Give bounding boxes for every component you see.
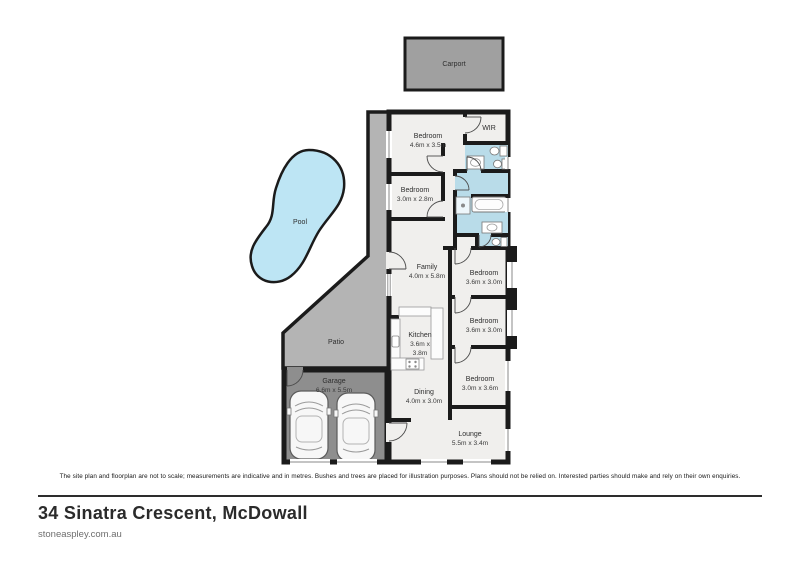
shower-icon <box>456 197 470 214</box>
dining-label: Dining <box>414 389 434 396</box>
kitchen-dims-1: 3.6m x <box>410 341 430 348</box>
family-label: Family <box>417 264 438 271</box>
car-icon <box>287 391 331 459</box>
stove-icon <box>406 359 419 369</box>
vanity-icon <box>482 222 502 233</box>
pool-shape <box>251 150 345 282</box>
vanity-icon <box>467 156 484 169</box>
garage-dims: 6.6m x 5.5m <box>316 387 353 394</box>
wir-label: WIR <box>482 125 496 132</box>
pantry-bench <box>399 307 431 316</box>
lounge-label: Lounge <box>458 431 481 438</box>
kitchen-dims-2: 3.8m <box>413 350 428 357</box>
bedroom2-label: Bedroom <box>401 187 430 194</box>
bedroom5-dims: 3.0m x 3.6m <box>462 385 499 392</box>
disclaimer-text: The site plan and floorplan are not to s… <box>0 473 800 480</box>
kitchen-label: Kitchen <box>408 332 431 339</box>
carport-label: Carport <box>442 61 465 68</box>
bedroom3-label: Bedroom <box>470 270 499 277</box>
bedroom4-dims: 3.6m x 3.0m <box>466 327 503 334</box>
bedroom2-dims: 3.0m x 2.8m <box>397 196 434 203</box>
bedroom1-label: Bedroom <box>414 133 443 140</box>
patio-label: Patio <box>328 339 344 346</box>
sink-icon <box>392 336 399 347</box>
bedroom1-dims: 4.6m x 3.5m <box>410 142 447 149</box>
pool-area: Pool <box>251 150 345 282</box>
agency-website: stoneaspley.com.au <box>38 529 122 540</box>
family-dims: 4.0m x 5.8m <box>409 273 446 280</box>
floorplan-svg: Carport Pool Patio <box>0 0 800 565</box>
bathtub-icon <box>472 197 506 212</box>
lounge-dims: 5.5m x 3.4m <box>452 440 489 447</box>
garage-label: Garage <box>322 378 345 385</box>
dining-dims: 4.0m x 3.0m <box>406 398 443 405</box>
garage-area: Garage 6.6m x 5.5m <box>284 370 387 462</box>
property-address: 34 Sinatra Crescent, McDowall <box>38 503 308 524</box>
kitchen-island <box>431 308 443 359</box>
bedroom4-label: Bedroom <box>470 318 499 325</box>
floorplan-page: Carport Pool Patio <box>0 0 800 565</box>
pool-label: Pool <box>293 219 307 226</box>
carport-area: Carport <box>405 38 503 90</box>
footer-divider <box>38 495 762 497</box>
bedroom5-label: Bedroom <box>466 376 495 383</box>
bedroom3-dims: 3.6m x 3.0m <box>466 279 503 286</box>
car-icon <box>334 393 378 461</box>
